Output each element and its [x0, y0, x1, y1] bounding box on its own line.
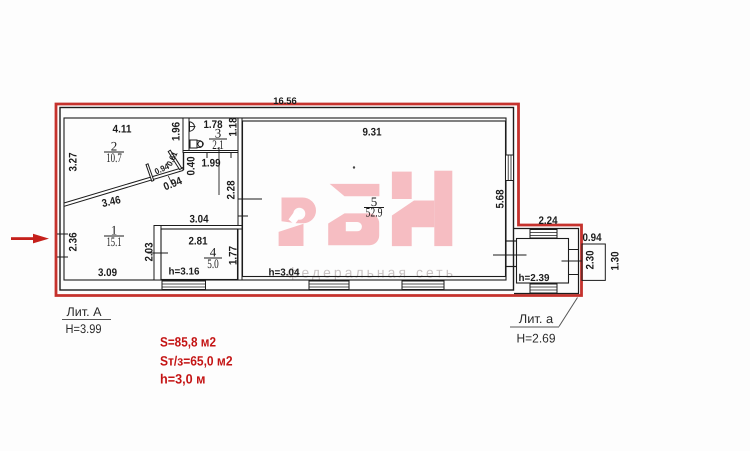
svg-text:1.30: 1.30: [610, 252, 622, 271]
svg-text:2.30: 2.30: [585, 251, 597, 270]
svg-text:Лит. а: Лит. а: [519, 312, 554, 326]
svg-text:2.03: 2.03: [144, 243, 156, 262]
svg-text:3.27: 3.27: [68, 153, 80, 172]
svg-text:1.18: 1.18: [228, 118, 240, 137]
svg-text:2.24: 2.24: [539, 215, 559, 227]
svg-text:Н=3.99: Н=3.99: [66, 322, 102, 336]
svg-text:h=3.16: h=3.16: [169, 267, 200, 278]
svg-text:0.94: 0.94: [583, 232, 603, 244]
svg-text:10.7: 10.7: [106, 150, 122, 165]
svg-text:9.31: 9.31: [363, 127, 382, 139]
svg-text:0.40: 0.40: [186, 157, 198, 176]
svg-text:h=2.39: h=2.39: [519, 273, 550, 284]
svg-text:1.96: 1.96: [171, 122, 183, 141]
svg-text:2.81: 2.81: [189, 236, 208, 248]
svg-text:2.1: 2.1: [212, 137, 224, 152]
svg-text:3.09: 3.09: [98, 267, 117, 279]
svg-text:h=3.04: h=3.04: [269, 268, 300, 279]
svg-text:2.28: 2.28: [226, 181, 238, 200]
svg-text:1.77: 1.77: [228, 246, 240, 265]
svg-text:h=3,0 м: h=3,0 м: [160, 372, 206, 387]
svg-text:S=85,8 м2: S=85,8 м2: [160, 335, 216, 350]
svg-text:15.1: 15.1: [107, 234, 122, 249]
svg-text:4.11: 4.11: [113, 124, 132, 136]
svg-text:федеральная сеть: федеральная сеть: [287, 266, 456, 282]
svg-text:5.68: 5.68: [495, 190, 507, 209]
svg-text:52.9: 52.9: [366, 205, 383, 220]
svg-text:5.0: 5.0: [207, 256, 219, 271]
svg-text:3.04: 3.04: [190, 214, 210, 226]
svg-text:Лит. А: Лит. А: [67, 305, 103, 319]
svg-text:Н=2.69: Н=2.69: [517, 332, 556, 346]
svg-text:2.36: 2.36: [68, 233, 80, 252]
svg-text:Sт/з=65,0 м2: Sт/з=65,0 м2: [160, 354, 233, 369]
svg-text:1.99: 1.99: [202, 158, 221, 170]
svg-text:16.56: 16.56: [273, 96, 297, 107]
